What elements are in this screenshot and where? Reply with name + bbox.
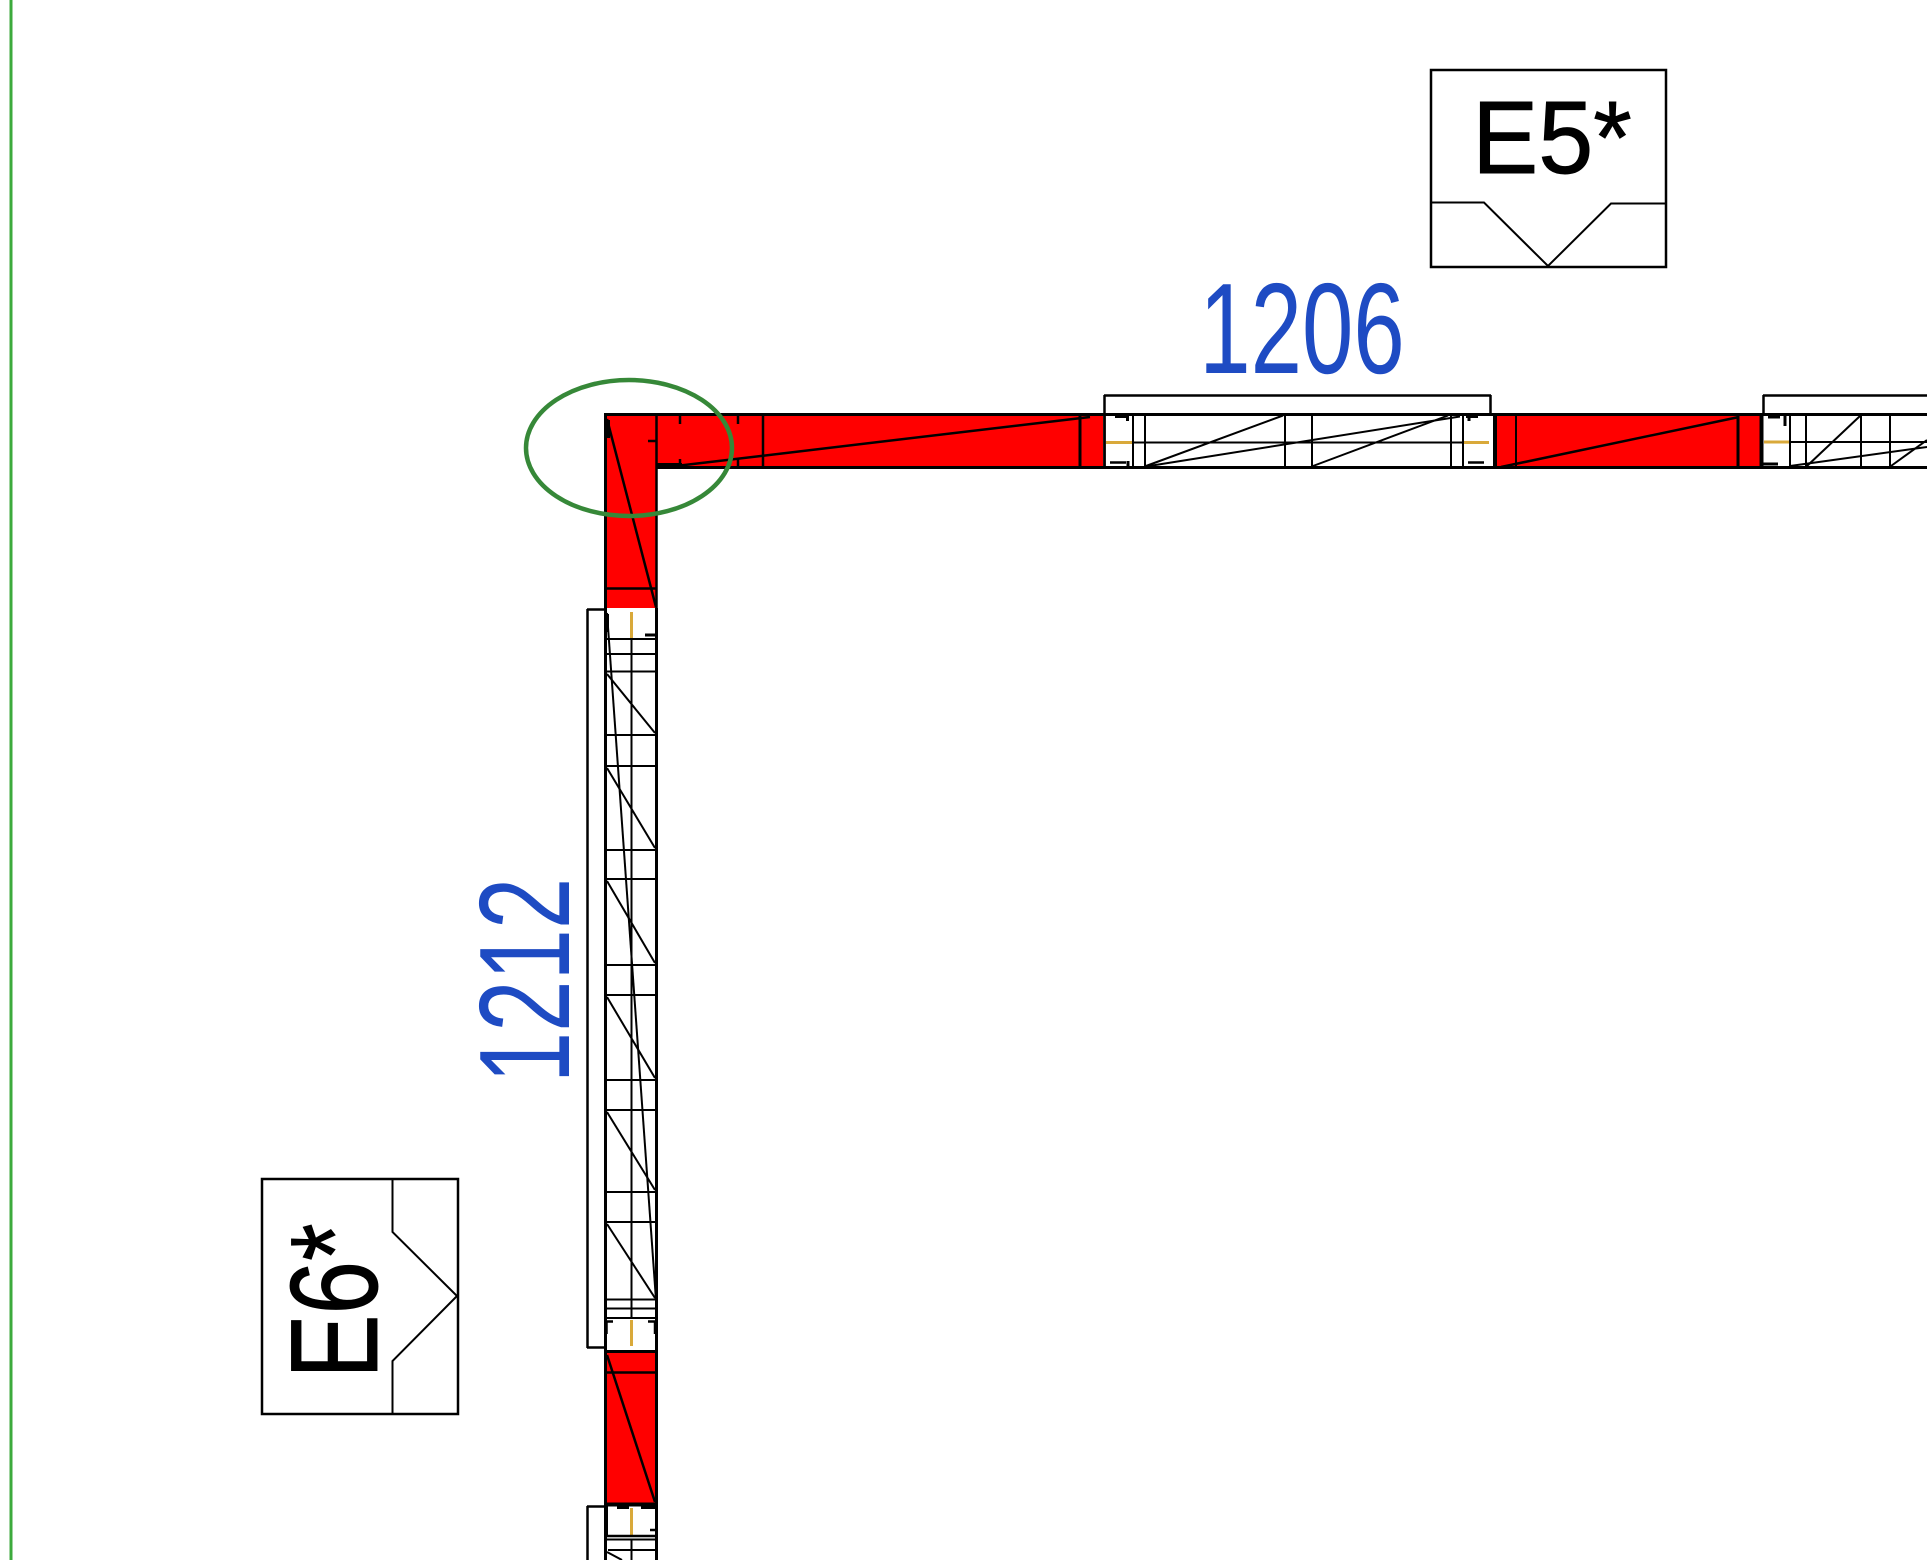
svg-text:1212: 1212: [452, 878, 597, 1083]
svg-text:E6*: E6*: [265, 1224, 404, 1379]
svg-text:E5*: E5*: [1472, 81, 1631, 195]
svg-text:1206: 1206: [1199, 256, 1404, 401]
